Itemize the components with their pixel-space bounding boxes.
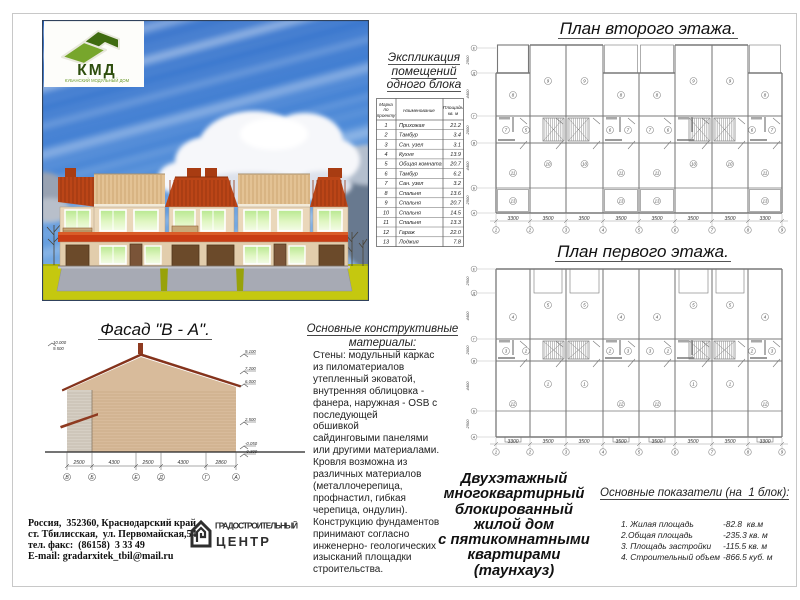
svg-text:4300: 4300 (108, 460, 119, 466)
svg-text:2500: 2500 (72, 460, 84, 466)
svg-text:Спальня: Спальня (399, 201, 421, 207)
svg-text:Площадь: Площадь (443, 105, 464, 110)
svg-text:8: 8 (384, 191, 388, 197)
svg-text:ЦЕНТР: ЦЕНТР (216, 534, 271, 549)
svg-text:22.0: 22.0 (449, 230, 462, 236)
svg-text:КМД: КМД (77, 62, 116, 79)
svg-text:-0.050: -0.050 (245, 441, 258, 446)
svg-text:13.3: 13.3 (450, 220, 462, 226)
svg-text:6.2: 6.2 (453, 172, 461, 178)
svg-text:Прихожая: Прихожая (399, 123, 425, 129)
svg-text:3.1: 3.1 (453, 142, 461, 148)
svg-text:Тамбур: Тамбур (399, 172, 418, 178)
svg-text:по: по (383, 107, 389, 112)
svg-text:Сан. узел: Сан. узел (399, 142, 423, 148)
svg-text:Сан. узел: Сан. узел (399, 181, 423, 187)
svg-text:-0.300: -0.300 (245, 449, 258, 454)
svg-text:2: 2 (383, 133, 387, 139)
svg-text:9: 9 (384, 201, 387, 207)
svg-text:3.4: 3.4 (453, 133, 461, 139)
svg-text:14.5: 14.5 (450, 210, 462, 216)
svg-text:3: 3 (384, 142, 388, 148)
svg-text:7.200: 7.200 (245, 366, 256, 371)
svg-text:2860: 2860 (214, 460, 226, 466)
svg-text:6: 6 (384, 172, 388, 178)
svg-text:А: А (233, 475, 238, 481)
svg-text:21.2: 21.2 (449, 123, 461, 129)
svg-text:3.2: 3.2 (453, 181, 461, 187)
svg-text:Лоджия: Лоджия (398, 240, 419, 246)
svg-text:11: 11 (383, 220, 389, 226)
svg-text:9.500: 9.500 (53, 346, 64, 351)
svg-text:1: 1 (384, 123, 387, 129)
svg-text:20.7: 20.7 (449, 201, 462, 207)
svg-text:20.7: 20.7 (449, 162, 462, 168)
svg-text:12: 12 (383, 230, 389, 236)
svg-text:10.000: 10.000 (53, 340, 67, 345)
svg-text:Гараж: Гараж (399, 230, 415, 236)
svg-text:7: 7 (384, 181, 388, 187)
svg-text:Кухня: Кухня (399, 152, 414, 158)
svg-text:6.000: 6.000 (245, 379, 256, 384)
svg-text:4300: 4300 (177, 460, 188, 466)
svg-text:кв. м: кв. м (448, 111, 459, 116)
svg-text:Спальня: Спальня (399, 220, 421, 226)
svg-text:Спальня: Спальня (399, 191, 421, 197)
svg-text:9.100: 9.100 (245, 349, 256, 354)
svg-text:ГРАДОСТРОИТЕЛЬНЫЙ: ГРАДОСТРОИТЕЛЬНЫЙ (215, 520, 298, 531)
svg-text:2500: 2500 (141, 460, 153, 466)
svg-text:13.9: 13.9 (450, 152, 461, 158)
svg-text:13: 13 (383, 240, 390, 246)
svg-text:Наименование: Наименование (403, 108, 435, 113)
svg-text:4: 4 (384, 152, 387, 158)
svg-text:2.500: 2.500 (244, 417, 256, 422)
svg-text:5: 5 (384, 162, 388, 168)
svg-text:КУБАНСКИЙ МОДУЛЬНЫЙ ДОМ: КУБАНСКИЙ МОДУЛЬНЫЙ ДОМ (65, 78, 130, 83)
svg-text:Д: Д (158, 475, 163, 481)
svg-text:проекту: проекту (377, 113, 396, 118)
svg-text:Общая комната: Общая комната (399, 162, 442, 168)
svg-text:7.8: 7.8 (453, 240, 462, 246)
svg-text:13.6: 13.6 (450, 191, 462, 197)
svg-text:Тамбур: Тамбур (399, 133, 418, 139)
svg-text:Спальня: Спальня (399, 210, 421, 216)
svg-text:10: 10 (383, 210, 390, 216)
